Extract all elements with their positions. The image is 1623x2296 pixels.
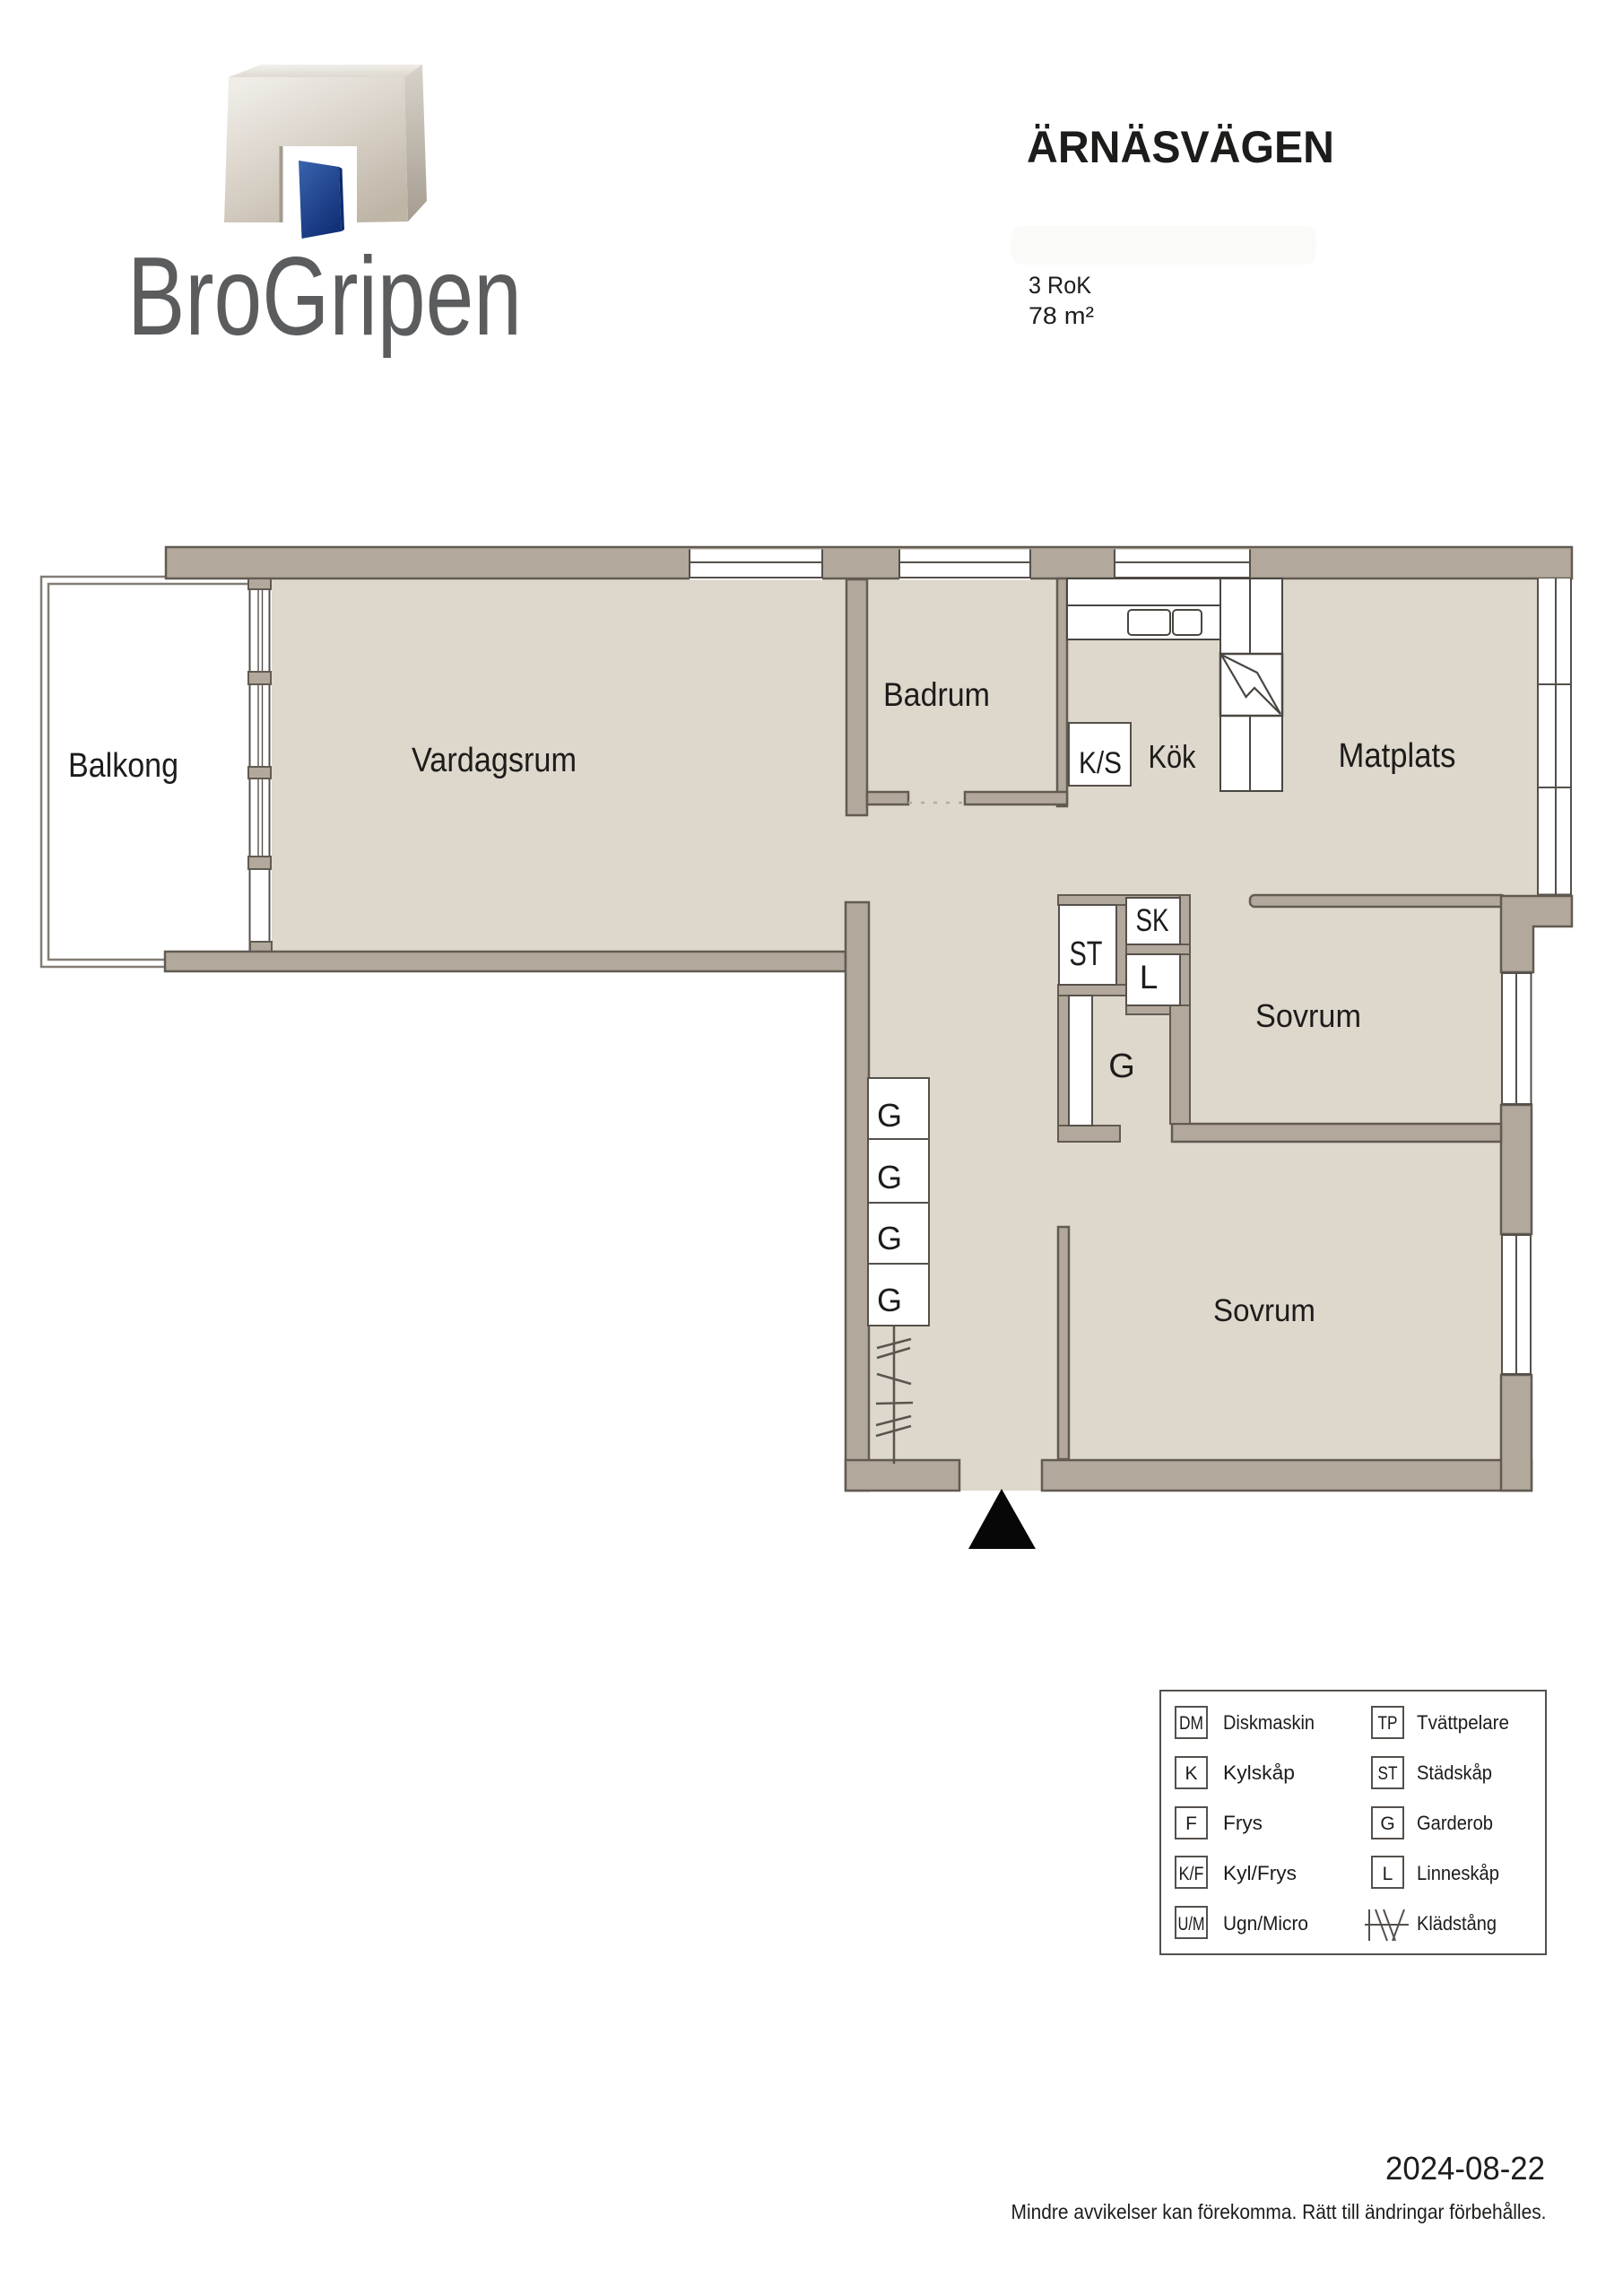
svg-text:Linneskåp: Linneskåp — [1417, 1862, 1499, 1884]
svg-text:F: F — [1185, 1813, 1197, 1834]
svg-text:K/F: K/F — [1179, 1864, 1204, 1884]
svg-text:3 RoK: 3 RoK — [1028, 272, 1091, 299]
svg-text:ST: ST — [1378, 1763, 1398, 1784]
svg-text:BroGripen: BroGripen — [127, 235, 522, 359]
svg-text:K: K — [1185, 1763, 1197, 1784]
svg-text:ST: ST — [1070, 935, 1103, 973]
svg-text:G: G — [877, 1159, 902, 1196]
svg-text:Sovrum: Sovrum — [1213, 1293, 1315, 1328]
svg-text:Balkong: Balkong — [68, 747, 178, 785]
svg-text:Kylskåp: Kylskåp — [1223, 1761, 1295, 1784]
svg-text:Mindre avvikelser kan förekomm: Mindre avvikelser kan förekomma. Rätt ti… — [1011, 2200, 1547, 2223]
svg-text:G: G — [877, 1097, 902, 1134]
svg-text:L: L — [1140, 959, 1159, 996]
svg-text:ÄRNÄSVÄGEN: ÄRNÄSVÄGEN — [1027, 122, 1334, 172]
svg-text:G: G — [877, 1220, 902, 1257]
svg-text:G: G — [1380, 1813, 1394, 1834]
svg-text:G: G — [1108, 1048, 1135, 1085]
svg-text:SK: SK — [1136, 903, 1169, 938]
svg-text:Kyl/Frys: Kyl/Frys — [1223, 1862, 1297, 1884]
svg-text:L: L — [1383, 1864, 1393, 1884]
svg-text:G: G — [877, 1282, 902, 1318]
svg-text:Frys: Frys — [1223, 1812, 1263, 1834]
svg-text:U/M: U/M — [1178, 1914, 1205, 1935]
svg-text:Garderob: Garderob — [1417, 1812, 1493, 1834]
svg-text:Matplats: Matplats — [1339, 737, 1456, 775]
svg-text:K/S: K/S — [1079, 746, 1122, 780]
svg-text:78 m²: 78 m² — [1028, 302, 1094, 329]
svg-text:Tvättpelare: Tvättpelare — [1417, 1711, 1509, 1734]
svg-text:Klädstång: Klädstång — [1417, 1912, 1497, 1935]
svg-text:Vardagsrum: Vardagsrum — [412, 742, 577, 779]
svg-text:Städskåp: Städskåp — [1417, 1761, 1492, 1784]
svg-text:Sovrum: Sovrum — [1255, 997, 1361, 1034]
svg-text:TP: TP — [1378, 1713, 1398, 1734]
svg-text:2024-08-22: 2024-08-22 — [1385, 2150, 1545, 2187]
svg-text:Badrum: Badrum — [883, 676, 990, 713]
svg-text:Diskmaskin: Diskmaskin — [1223, 1711, 1315, 1734]
svg-text:Ugn/Micro: Ugn/Micro — [1223, 1912, 1308, 1935]
svg-text:Kök: Kök — [1149, 738, 1197, 775]
svg-text:DM: DM — [1179, 1713, 1203, 1734]
